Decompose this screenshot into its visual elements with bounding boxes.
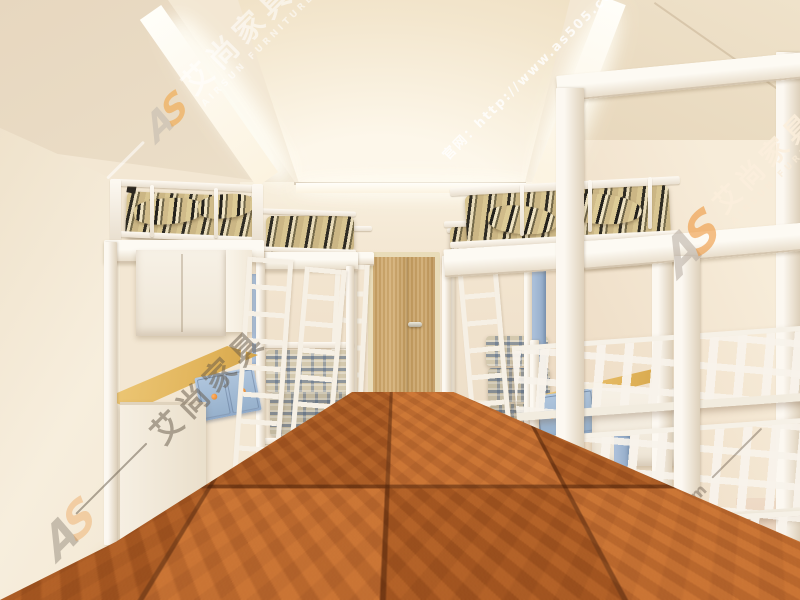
mid-right-bed-post-front <box>442 256 451 508</box>
frame-floor-shadow <box>540 578 800 600</box>
near-right-bed-baluster-3 <box>648 177 652 229</box>
left-wall <box>0 118 120 600</box>
near-left-cabinet-seam <box>181 254 183 332</box>
drawer-knob <box>210 393 217 400</box>
dorm-room-render: A S 艾尚家具 AIRSUN FURNITURE 官网：http://www.… <box>0 0 800 600</box>
frame-post-b <box>674 256 700 600</box>
near-left-bed-rail-cap-right <box>252 184 263 244</box>
frame-post-a <box>556 88 584 600</box>
near-right-bed-baluster-1 <box>520 184 524 236</box>
door-handle <box>408 322 422 327</box>
near-right-bed-baluster-2 <box>588 180 592 232</box>
mid-left-bed-post-rear <box>346 266 354 482</box>
near-left-bed-baluster-2 <box>214 188 218 238</box>
near-left-desk-gable <box>120 402 206 555</box>
door-seam <box>406 258 408 397</box>
near-left-floor-shadow <box>100 550 270 566</box>
near-left-bed-post-front <box>104 242 117 545</box>
near-left-bed-rail-cap-left <box>110 179 121 241</box>
door-slab <box>373 257 435 398</box>
near-left-bed-baluster-1 <box>150 185 154 237</box>
